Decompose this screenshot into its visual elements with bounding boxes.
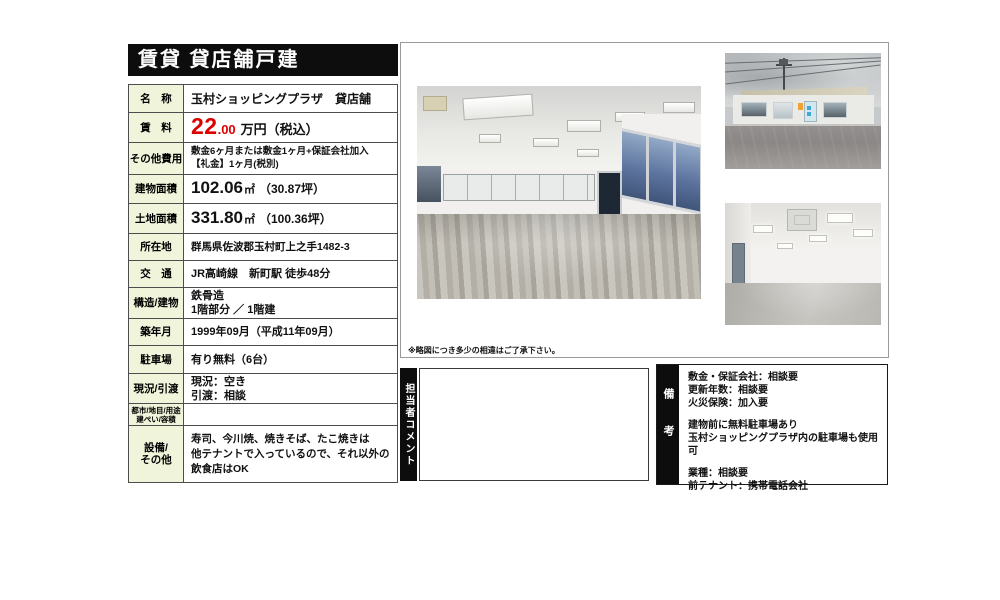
rent-amount: 22 [191,119,218,133]
staff-comment-label-bar: 担当者コメント [400,368,417,481]
facilities-label-line1: 設備/ [144,442,168,454]
ac-grille [794,215,810,225]
row-value-parking: 有り無料（6台） [184,346,397,373]
building-area: 102.06 ㎡ （30.87坪） [191,181,390,197]
row-label-building-area: 建物面積 [129,175,184,203]
door-blue-panel [807,112,811,116]
ceiling-light [853,229,873,237]
notes-line: 建物前に無料駐車場あり [688,419,878,432]
ceiling-light [809,235,827,242]
table-row-zoning: 都市/地目/用途 建ぺい/容積 [129,404,397,426]
ceiling-vent [423,96,447,111]
ceiling-light [533,138,559,147]
concrete-floor [725,283,881,325]
row-label-other-fees: その他費用 [129,143,184,174]
land-area-tsubo: （100.36坪） [259,212,332,226]
facilities-line3: 飲食店はOK [191,462,390,477]
row-label-land-area: 土地面積 [129,204,184,233]
storefront-window [741,102,767,117]
photo-disclaimer: ※略図につき多少の相違はご了承下さい。 [408,345,560,356]
main-interior-photo [417,86,701,299]
property-name: 玉村ショッピングプラザ 貸店舗 [191,92,390,106]
left-dusk-window [417,166,441,202]
door-blue-panel [807,106,811,110]
property-spec-table: 名 称 玉村ショッピングプラザ 貸店舗 賃 料 22 .00 万円（税込） その… [128,84,398,483]
address-text: 群馬県佐波郡玉村町上之手1482-3 [191,240,390,254]
zoning-label-line2: 建ぺい/容積 [136,415,176,424]
row-value-name: 玉村ショッピングプラザ 貸店舗 [184,85,397,112]
notes-line: 前テナント：携帯電話会社 [688,480,878,493]
row-value-building-area: 102.06 ㎡ （30.87坪） [184,175,397,203]
table-row-rent: 賃 料 22 .00 万円（税込） [129,113,397,143]
back-window-blinds [443,174,595,201]
rent-decimal: .00 [218,123,236,137]
notes-line: 玉村ショッピングプラザ内の駐車場も使用可 [688,432,878,458]
notes-line: 敷金・保証会社：相談要 [688,371,878,384]
row-label-parking: 駐車場 [129,346,184,373]
row-label-rent: 賃 料 [129,113,184,142]
rent-suffix: 万円（税込） [241,123,319,137]
notes-line: 業種：相談要 [688,467,878,480]
table-row-other-fees: その他費用 敷金6ヶ月または敷金1ヶ月+保証会社加入 【礼金】1ヶ月(税別) [129,143,397,175]
notes-content: 敷金・保証会社：相談要 更新年数：相談要 火災保険：加入要 建物前に無料駐車場あ… [679,365,887,484]
row-label-structure: 構造/建物 [129,288,184,318]
rent-price: 22 .00 万円（税込） [191,119,390,137]
status-line2: 引渡：相談 [191,389,390,403]
structure-line1: 鉄骨造 [191,289,390,303]
staff-comment-box [419,368,649,481]
table-row-address: 所在地 群馬県佐波郡玉村町上之手1482-3 [129,234,397,261]
glass-entrance-door [597,171,622,216]
facilities-line2: 他テナントで入っているので、それ以外の [191,447,390,462]
structure-line2: 1階部分 ／ 1階建 [191,303,390,317]
notes-group-tenant: 業種：相談要 前テナント：携帯電話会社 [688,467,878,493]
ceiling-light [827,213,853,223]
side-door [732,243,745,287]
table-row-access: 交 通 JR高崎線 新町駅 徒歩48分 [129,261,397,288]
parking-text: 有り無料（6台） [191,353,390,367]
table-row-name: 名 称 玉村ショッピングプラザ 貸店舗 [129,85,397,113]
row-label-status: 現況/引渡 [129,374,184,403]
storefront-window [823,102,847,118]
building-area-tsubo: （30.87坪） [259,182,325,196]
row-label-zoning: 都市/地目/用途 建ぺい/容積 [129,404,184,425]
row-value-address: 群馬県佐波郡玉村町上之手1482-3 [184,234,397,260]
row-label-address: 所在地 [129,234,184,260]
notes-group-terms: 敷金・保証会社：相談要 更新年数：相談要 火災保険：加入要 [688,371,878,410]
ceiling-light [753,225,773,233]
entrance-door [804,101,817,122]
land-area-unit: ㎡ [244,213,255,227]
notes-group-parking: 建物前に無料駐車場あり 玉村ショッピングプラザ内の駐車場も使用可 [688,419,878,458]
asphalt-parking-lot [725,125,881,169]
row-label-name: 名 称 [129,85,184,112]
property-listing-page: 賃貸 貸店舗戸建 名 称 玉村ショッピングプラザ 貸店舗 賃 料 22 .00 … [0,0,1000,600]
second-interior-photo [725,203,881,325]
facilities-line1: 寿司、今川焼、焼きそば、たこ焼きは [191,432,390,447]
utility-pole-transformer [779,59,788,65]
ceiling-cassette-ac [787,209,817,231]
ceiling-light [577,149,599,157]
row-value-zoning [184,404,397,425]
table-row-structure: 構造/建物 鉄骨造 1階部分 ／ 1階建 [129,288,397,319]
table-row-status: 現況/引渡 現況：空き 引渡：相談 [129,374,397,404]
notes-section: 備考 敷金・保証会社：相談要 更新年数：相談要 火災保険：加入要 建物前に無料駐… [656,364,888,485]
staff-comment-label: 担当者コメント [401,383,416,467]
other-fees-line2: 【礼金】1ヶ月(税別) [191,159,390,172]
zoning-label-line1: 都市/地目/用途 [131,406,180,415]
storefront-window [773,102,793,119]
ceiling-light [663,102,695,113]
row-value-land-area: 331.80 ㎡ （100.36坪） [184,204,397,233]
row-label-facilities: 設備/ その他 [129,426,184,482]
land-area: 331.80 ㎡ （100.36坪） [191,211,390,227]
building-exterior-photo [725,53,881,169]
row-value-other-fees: 敷金6ヶ月または敷金1ヶ月+保証会社加入 【礼金】1ヶ月(税別) [184,143,397,174]
row-value-status: 現況：空き 引渡：相談 [184,374,397,403]
other-fees-line1: 敷金6ヶ月または敷金1ヶ月+保証会社加入 [191,146,390,159]
row-value-facilities: 寿司、今川焼、焼きそば、たこ焼きは 他テナントで入っているので、それ以外の 飲食… [184,426,397,482]
table-row-facilities: 設備/ その他 寿司、今川焼、焼きそば、たこ焼きは 他テナントで入っているので、… [129,426,397,482]
page-title: 賃貸 貸店舗戸建 [128,44,398,76]
notes-line: 火災保険：加入要 [688,397,878,410]
row-value-structure: 鉄骨造 1階部分 ／ 1階建 [184,288,397,318]
row-label-access: 交 通 [129,261,184,287]
curb-line [725,124,881,126]
table-row-land-area: 土地面積 331.80 ㎡ （100.36坪） [129,204,397,234]
photo-panel: ※略図につき多少の相違はご了承下さい。 [400,42,889,358]
notes-label: 備考 [660,388,676,462]
orange-sign [798,103,803,110]
row-label-built: 築年月 [129,319,184,345]
built-text: 1999年09月（平成11年09月） [191,325,390,339]
status-line1: 現況：空き [191,375,390,389]
row-value-rent: 22 .00 万円（税込） [184,113,397,142]
row-value-built: 1999年09月（平成11年09月） [184,319,397,345]
table-row-parking: 駐車場 有り無料（6台） [129,346,397,374]
notes-line: 更新年数：相談要 [688,384,878,397]
table-row-built: 築年月 1999年09月（平成11年09月） [129,319,397,346]
window-mullions [622,131,701,212]
access-text: JR高崎線 新町駅 徒歩48分 [191,267,390,281]
row-value-access: JR高崎線 新町駅 徒歩48分 [184,261,397,287]
notes-label-bar: 備考 [657,365,679,484]
ceiling-light [567,120,601,132]
facilities-label-line2: その他 [140,454,172,466]
wood-plank-floor [417,214,701,299]
land-area-num: 331.80 [191,211,243,225]
building-area-unit: ㎡ [244,183,255,197]
table-row-building-area: 建物面積 102.06 ㎡ （30.87坪） [129,175,397,204]
ceiling-light [479,134,501,143]
building-area-num: 102.06 [191,181,243,195]
